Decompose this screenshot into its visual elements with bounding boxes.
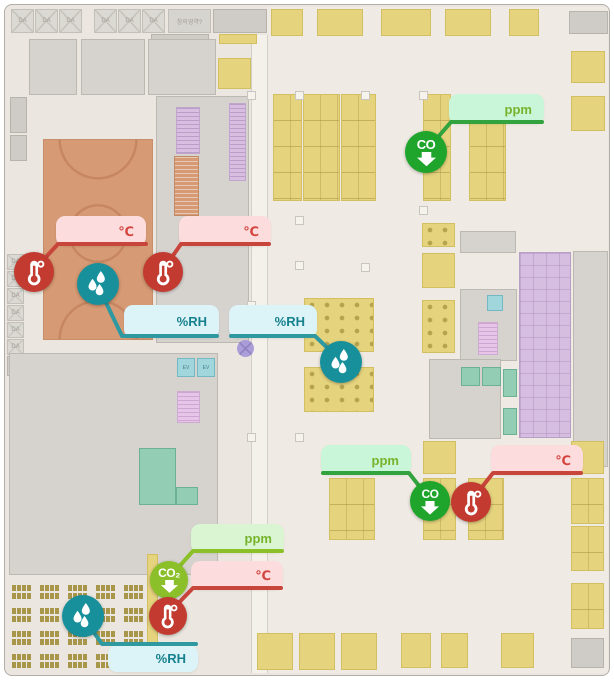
humidity-unit-bubble[interactable]: %RH bbox=[108, 645, 198, 672]
plan-pillar bbox=[247, 433, 256, 442]
co-unit-bubble[interactable]: ppm bbox=[449, 94, 544, 124]
co-label: CO bbox=[417, 138, 436, 151]
plan-seats bbox=[123, 630, 147, 646]
plan-room-grey-dark bbox=[213, 9, 267, 33]
plan-elev-cyan bbox=[487, 295, 503, 311]
plan-table bbox=[219, 34, 257, 44]
plan-box-da: DA bbox=[35, 9, 58, 33]
temperature-sensor-marker[interactable] bbox=[149, 597, 187, 635]
plan-xcircle bbox=[237, 340, 254, 357]
plan-stairs-pink bbox=[478, 322, 498, 355]
bubble-label: ppm bbox=[505, 103, 532, 116]
plan-seats bbox=[39, 584, 63, 600]
plan-seats bbox=[39, 653, 63, 669]
plan-pillar bbox=[419, 91, 428, 100]
plan-table-grid bbox=[329, 478, 375, 540]
plan-pillar bbox=[361, 263, 370, 272]
plan-pillar bbox=[247, 91, 256, 100]
co2-down-arrow-icon bbox=[160, 580, 179, 593]
plan-seats bbox=[11, 607, 35, 623]
co-down-arrow-icon bbox=[420, 501, 440, 515]
plan-stairs-pink bbox=[177, 391, 200, 423]
plan-room-grey bbox=[460, 231, 516, 253]
bubble-label: ℃ bbox=[555, 454, 571, 467]
plan-box-da: DA bbox=[142, 9, 165, 33]
plan-table-grid bbox=[273, 94, 302, 201]
bubble-label: ppm bbox=[372, 454, 399, 467]
plan-table-grid bbox=[571, 478, 604, 524]
plan-table bbox=[422, 253, 455, 288]
plan-table bbox=[445, 9, 491, 36]
bubble-label: ℃ bbox=[243, 225, 259, 238]
plan-pillar bbox=[361, 91, 370, 100]
plan-box-da: DA bbox=[7, 322, 24, 338]
plan-table bbox=[299, 633, 335, 670]
co2-label: CO₂ bbox=[158, 567, 180, 579]
plan-pillar bbox=[295, 216, 304, 225]
plan-elev-cyan: EV bbox=[197, 358, 215, 377]
co-down-arrow-icon bbox=[416, 152, 437, 167]
humidity-sensor-marker[interactable] bbox=[320, 341, 362, 383]
humidity-sensor-marker[interactable] bbox=[77, 263, 119, 305]
plan-table-icons bbox=[422, 300, 455, 353]
plan-table bbox=[381, 9, 431, 36]
plan-box-da: DA bbox=[7, 305, 24, 321]
plan-box-da: DA bbox=[118, 9, 141, 33]
floor-plan: DADADADADADA창의영역?DADADADADADAEVEV℃℃%RH%R… bbox=[4, 4, 610, 676]
plan-room-grey bbox=[573, 251, 608, 467]
plan-table-grid bbox=[303, 94, 340, 201]
water-drops-icon bbox=[85, 271, 112, 298]
plan-room-grey-dark bbox=[571, 638, 604, 668]
plan-table bbox=[271, 9, 303, 36]
plan-purple bbox=[519, 252, 571, 438]
plan-room-grey-dark bbox=[10, 135, 27, 161]
plan-pillar bbox=[295, 261, 304, 270]
plan-teal bbox=[461, 367, 480, 386]
plan-table-grid bbox=[571, 526, 604, 571]
water-drops-icon bbox=[70, 603, 97, 630]
plan-box-da: DA bbox=[11, 9, 34, 33]
plan-table bbox=[441, 633, 468, 668]
plan-seats bbox=[11, 653, 35, 669]
plan-table bbox=[401, 633, 431, 668]
co2-unit-bubble[interactable]: ppm bbox=[191, 524, 284, 553]
bubble-label: ℃ bbox=[118, 225, 134, 238]
floor-plan-world: DADADADADADA창의영역?DADADADADADAEVEV℃℃%RH%R… bbox=[4, 4, 610, 676]
plan-seats bbox=[95, 584, 119, 600]
plan-pillar bbox=[295, 433, 304, 442]
temperature-unit-bubble[interactable]: ℃ bbox=[179, 216, 271, 246]
plan-teal bbox=[503, 408, 517, 435]
plan-pillar bbox=[295, 91, 304, 100]
plan-box-label: 창의영역? bbox=[168, 9, 211, 33]
thermometer-icon bbox=[21, 259, 48, 286]
humidity-unit-bubble[interactable]: %RH bbox=[229, 305, 317, 338]
plan-table bbox=[571, 96, 605, 131]
co-sensor-marker[interactable]: CO bbox=[410, 481, 450, 521]
plan-room-grey bbox=[9, 353, 218, 575]
plan-seats bbox=[123, 607, 147, 623]
plan-table bbox=[218, 58, 251, 89]
temperature-unit-bubble[interactable]: ℃ bbox=[191, 561, 283, 590]
plan-seats bbox=[39, 630, 63, 646]
thermometer-icon bbox=[155, 603, 181, 629]
water-drops-icon bbox=[328, 349, 355, 376]
plan-table-icons bbox=[422, 223, 455, 247]
plan-room-grey bbox=[148, 39, 216, 95]
monitoring-screen: DADADADADADA창의영역?DADADADADADAEVEV℃℃%RH%R… bbox=[0, 0, 614, 680]
thermometer-icon bbox=[150, 259, 177, 286]
co2-sensor-marker[interactable]: CO₂ bbox=[150, 561, 188, 599]
humidity-sensor-marker[interactable] bbox=[62, 595, 104, 637]
plan-room-grey-dark bbox=[569, 11, 608, 34]
bubble-label: %RH bbox=[177, 315, 207, 328]
plan-esc-orange bbox=[174, 156, 199, 216]
plan-teal bbox=[482, 367, 501, 386]
bubble-label: ppm bbox=[245, 532, 272, 545]
bubble-label: %RH bbox=[275, 315, 305, 328]
co-label: CO bbox=[422, 488, 439, 500]
bubble-label: %RH bbox=[156, 652, 186, 665]
plan-table bbox=[509, 9, 539, 36]
temperature-unit-bubble[interactable]: ℃ bbox=[491, 445, 583, 475]
plan-box-da: DA bbox=[94, 9, 117, 33]
plan-box-da: DA bbox=[7, 288, 24, 304]
plan-teal bbox=[139, 448, 176, 505]
plan-table bbox=[501, 633, 534, 668]
plan-seats bbox=[39, 607, 63, 623]
plan-table bbox=[571, 51, 605, 83]
plan-seats bbox=[11, 630, 35, 646]
thermometer-icon bbox=[458, 489, 485, 516]
plan-table bbox=[341, 633, 377, 670]
plan-stairs-lav bbox=[229, 103, 246, 181]
plan-table bbox=[423, 441, 456, 474]
plan-box-da: DA bbox=[59, 9, 82, 33]
plan-table bbox=[257, 633, 293, 670]
plan-room-grey-dark bbox=[10, 97, 27, 133]
bubble-label: ℃ bbox=[255, 569, 271, 582]
plan-seats bbox=[11, 584, 35, 600]
temperature-sensor-marker[interactable] bbox=[451, 482, 491, 522]
plan-teal bbox=[176, 487, 198, 505]
plan-elev-cyan: EV bbox=[177, 358, 195, 377]
plan-room-grey bbox=[29, 39, 77, 95]
co-unit-bubble[interactable]: ppm bbox=[321, 445, 411, 475]
plan-table-grid bbox=[341, 94, 376, 201]
plan-seats bbox=[95, 630, 119, 646]
co-sensor-marker[interactable]: CO bbox=[405, 131, 447, 173]
plan-table-grid bbox=[571, 583, 604, 629]
humidity-unit-bubble[interactable]: %RH bbox=[124, 305, 219, 338]
plan-seats bbox=[123, 584, 147, 600]
plan-room-grey bbox=[81, 39, 145, 95]
plan-seats bbox=[67, 653, 91, 669]
plan-teal bbox=[503, 369, 517, 397]
temperature-unit-bubble[interactable]: ℃ bbox=[56, 216, 146, 246]
plan-stairs-lav bbox=[176, 107, 200, 154]
temperature-sensor-marker[interactable] bbox=[143, 252, 183, 292]
plan-pillar bbox=[419, 206, 428, 215]
temperature-sensor-marker[interactable] bbox=[14, 252, 54, 292]
plan-table bbox=[317, 9, 363, 36]
